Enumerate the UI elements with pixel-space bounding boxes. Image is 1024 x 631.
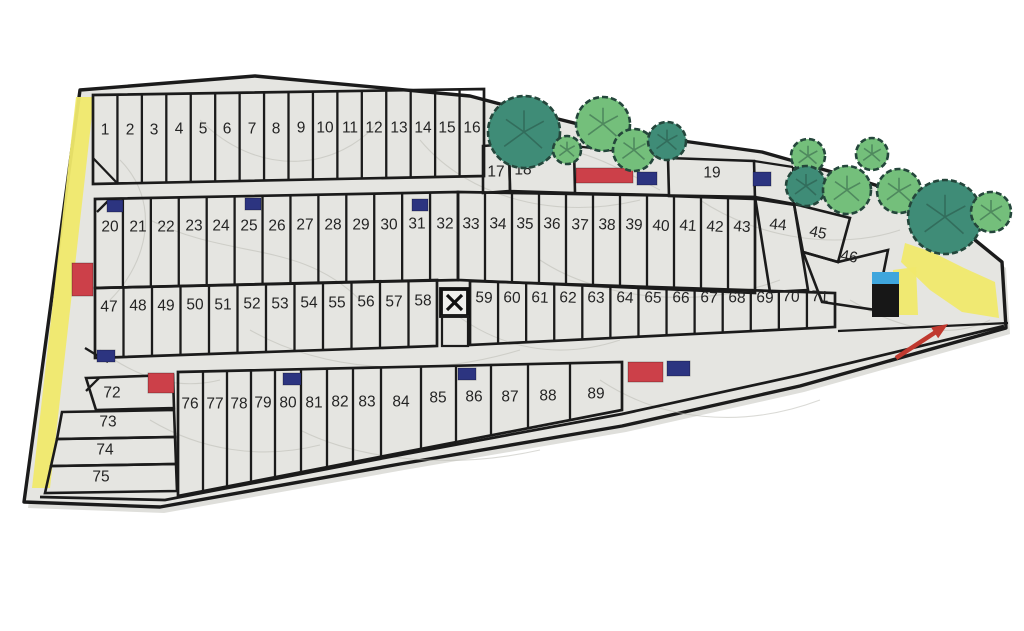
lot-number-33: 33 <box>462 215 480 233</box>
lot-number-29: 29 <box>352 217 369 234</box>
lot-number-78: 78 <box>230 396 247 413</box>
tree-icon <box>971 192 1011 232</box>
lot-number-19: 19 <box>703 165 720 182</box>
lot-number-88: 88 <box>539 388 556 405</box>
lot-number-41: 41 <box>679 217 697 235</box>
lot-number-62: 62 <box>559 289 577 307</box>
lot-number-47: 47 <box>100 299 117 316</box>
lot-number-70: 70 <box>782 288 800 306</box>
lot-number-23: 23 <box>185 218 202 235</box>
marker-blue <box>107 200 123 212</box>
lot-number-51: 51 <box>214 297 231 314</box>
lot-number-53: 53 <box>271 296 288 313</box>
tree-icon <box>553 136 581 164</box>
lot-number-59: 59 <box>475 289 493 307</box>
marker-blue <box>753 172 771 186</box>
tree-icon <box>823 166 871 214</box>
lot-number-86: 86 <box>465 389 482 406</box>
lot-number-15: 15 <box>438 120 455 137</box>
tree-icon <box>488 96 560 168</box>
marker-red <box>148 373 174 393</box>
lot-number-43: 43 <box>733 218 751 236</box>
lot-number-45: 45 <box>808 223 828 243</box>
lot-number-60: 60 <box>503 289 521 307</box>
lot-number-13: 13 <box>390 120 407 137</box>
lot-number-24: 24 <box>212 218 230 235</box>
lot-number-26: 26 <box>268 218 285 235</box>
lot-number-55: 55 <box>328 295 345 312</box>
lot-number-72: 72 <box>103 385 120 402</box>
lot-number-42: 42 <box>706 218 724 236</box>
building-roof-blue <box>872 272 899 284</box>
lot-number-5: 5 <box>199 121 208 138</box>
lot-number-75: 75 <box>92 469 109 486</box>
lot-number-11: 11 <box>342 120 358 137</box>
building-black <box>872 284 899 317</box>
lot-number-39: 39 <box>625 216 643 234</box>
lot-number-63: 63 <box>587 289 605 307</box>
lot-number-87: 87 <box>501 389 518 406</box>
lot-number-83: 83 <box>358 394 375 411</box>
lot-number-40: 40 <box>652 217 671 235</box>
lot-number-66: 66 <box>672 289 690 307</box>
lot-number-65: 65 <box>644 289 662 307</box>
lot-number-20: 20 <box>101 219 119 236</box>
lot-number-85: 85 <box>429 390 446 407</box>
lot-number-46: 46 <box>839 247 859 267</box>
lot-number-31: 31 <box>408 216 425 233</box>
tree-icon <box>648 122 686 160</box>
lot-number-37: 37 <box>571 216 589 234</box>
lot-number-54: 54 <box>300 295 318 312</box>
lot-number-67: 67 <box>700 289 718 307</box>
marker-blue <box>245 198 261 210</box>
lot-number-76: 76 <box>181 396 198 413</box>
marker-blue <box>667 361 690 376</box>
lot-number-57: 57 <box>385 294 402 311</box>
lot-number-12: 12 <box>365 120 382 137</box>
lot-number-64: 64 <box>616 289 634 307</box>
marker-blue <box>458 368 476 380</box>
marker-blue <box>283 373 301 385</box>
lot-number-35: 35 <box>516 215 534 233</box>
lot-number-22: 22 <box>157 219 174 236</box>
lot-number-14: 14 <box>414 120 432 137</box>
marker-blue <box>412 199 428 211</box>
lot-number-44: 44 <box>769 216 788 235</box>
lot-number-8: 8 <box>272 121 281 138</box>
lot-number-21: 21 <box>129 219 146 236</box>
marker-red <box>628 362 663 382</box>
lot-number-56: 56 <box>357 294 374 311</box>
lot-number-27: 27 <box>296 217 313 234</box>
lot-number-7: 7 <box>248 121 257 138</box>
marker-blue <box>97 350 115 362</box>
marker-red <box>576 168 633 183</box>
lot-number-2: 2 <box>126 122 135 139</box>
lot-number-79: 79 <box>254 395 271 412</box>
lot-number-10: 10 <box>316 120 334 137</box>
lot-number-28: 28 <box>324 217 341 234</box>
lot-number-81: 81 <box>305 395 322 412</box>
lot-number-82: 82 <box>331 394 348 411</box>
lot-number-73: 73 <box>99 414 116 431</box>
tree-icon <box>856 138 888 170</box>
lot-number-36: 36 <box>543 215 561 233</box>
lot-number-84: 84 <box>392 394 410 411</box>
lot-number-30: 30 <box>380 217 398 234</box>
marker-red <box>72 263 93 296</box>
lot-number-4: 4 <box>175 121 184 138</box>
marker-blue <box>637 172 657 185</box>
lot-number-25: 25 <box>240 218 257 235</box>
lot-number-49: 49 <box>157 298 174 315</box>
lot-number-34: 34 <box>489 215 508 233</box>
tree-icon <box>786 166 826 206</box>
lot-number-74: 74 <box>96 442 114 459</box>
lot-number-52: 52 <box>243 296 260 313</box>
site-plan-map: 1234567891011121314151617181920212223242… <box>0 0 1024 631</box>
lot-number-89: 89 <box>587 386 604 403</box>
site-plan-svg: 1234567891011121314151617181920212223242… <box>0 0 1024 631</box>
lot-number-17: 17 <box>487 164 504 181</box>
lot-number-68: 68 <box>728 289 746 307</box>
lot-number-58: 58 <box>414 293 431 310</box>
lot-number-50: 50 <box>186 297 204 314</box>
lot-number-61: 61 <box>531 289 549 307</box>
lot-number-9: 9 <box>297 120 306 137</box>
lot-number-71: 71 <box>811 288 829 306</box>
lot-number-1: 1 <box>101 122 110 139</box>
lot-number-48: 48 <box>129 298 146 315</box>
lot-number-32: 32 <box>436 216 453 233</box>
lot-number-77: 77 <box>206 396 223 413</box>
lot-number-69: 69 <box>756 289 774 307</box>
lot-number-38: 38 <box>598 216 616 234</box>
lot-number-80: 80 <box>279 395 297 412</box>
lot-number-3: 3 <box>150 122 159 139</box>
lot-number-16: 16 <box>463 120 480 137</box>
lot-number-6: 6 <box>223 121 232 138</box>
